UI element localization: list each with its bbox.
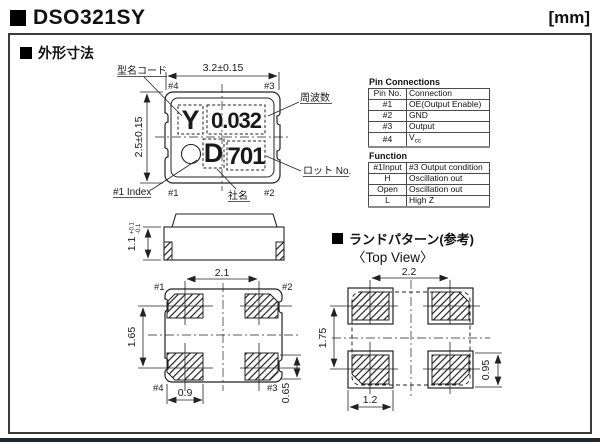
- output-condition-cell: Oscillation out: [407, 174, 490, 185]
- label-lot-no: ロット No.: [303, 166, 351, 177]
- dim-thickness-label: 1.1: [126, 237, 138, 252]
- connection-cell: Output: [407, 122, 490, 133]
- output-condition-cell: Oscillation out: [407, 185, 490, 196]
- pad-label-tr: #3: [264, 81, 275, 92]
- bottom-view-drawing: 2.1 1.65 0.9 0.65 #1 #2 #4 #3: [100, 263, 320, 433]
- section-square-icon: [332, 233, 343, 244]
- input-header-cell: #1Input: [369, 163, 407, 174]
- vcc-subscript: cc: [415, 138, 422, 145]
- pin-connections-table: Pin No. Connection #1 OE(Output Enable) …: [368, 88, 490, 148]
- pad-label-br: #3: [267, 383, 278, 394]
- input-cell: L: [369, 196, 407, 208]
- side-view-dimension-lines: [143, 227, 161, 260]
- dim-land-width-label: 1.2: [363, 394, 378, 406]
- pin-connections-block: Pin Connections Pin No. Connection #1 OE…: [368, 77, 490, 148]
- dim-thickness-tol-plus: +0.1: [130, 221, 136, 234]
- output-condition-header-cell: #3 Output condition: [407, 163, 490, 174]
- label-frequency: 周波数: [300, 91, 330, 104]
- function-table: #1Input #3 Output condition H Oscillatio…: [368, 162, 490, 208]
- top-view-drawing: 3.2±0.15 2.5±0.15 Y 0.032 D 701 #4 #3 #1…: [60, 58, 360, 208]
- connection-cell: GND: [407, 111, 490, 122]
- table-row: L High Z: [369, 196, 490, 208]
- pin-no-cell: #3: [369, 122, 407, 133]
- table-header-row: Pin No. Connection: [369, 89, 490, 100]
- dim-width-label: 3.2±0.15: [203, 62, 244, 74]
- page-header: DSO321SY: [10, 6, 146, 30]
- dim-land-pitch-x-label: 2.2: [402, 266, 417, 278]
- marking-company: D: [204, 138, 223, 168]
- table-row: #4 Vcc: [369, 133, 490, 148]
- marking-lot: 701: [227, 143, 265, 170]
- connection-cell: OE(Output Enable): [407, 100, 490, 111]
- input-cell: H: [369, 174, 407, 185]
- pin-no-header-cell: Pin No.: [369, 89, 407, 100]
- table-row: #2 GND: [369, 111, 490, 122]
- table-row: #1 OE(Output Enable): [369, 100, 490, 111]
- page-title: DSO321SY: [33, 6, 146, 30]
- pin-no-cell: #2: [369, 111, 407, 122]
- marking-code: Y: [181, 105, 199, 135]
- package-body-side: [164, 227, 284, 260]
- output-condition-cell: High Z: [407, 196, 490, 208]
- pad-label-tl: #1: [154, 282, 165, 293]
- pin1-index-mark: [182, 145, 201, 164]
- title-square-icon: [10, 10, 26, 26]
- table-row: H Oscillation out: [369, 174, 490, 185]
- connection-cell: Vcc: [407, 133, 490, 148]
- pad-label-bl: #1: [168, 188, 179, 199]
- pad-label-tr: #2: [282, 282, 293, 293]
- dim-pad-height-label: 0.65: [280, 383, 292, 404]
- dim-land-height-label: 0.95: [480, 360, 492, 381]
- table-row: #3 Output: [369, 122, 490, 133]
- label-company: 社名: [228, 189, 248, 202]
- dim-land-pitch-y-label: 1.75: [318, 328, 329, 349]
- package-lid-side: [172, 214, 277, 227]
- dim-height-label: 2.5±0.15: [133, 116, 145, 157]
- terminal-right: [276, 242, 284, 260]
- dim-pad-pitch-y-label: 1.65: [126, 327, 138, 348]
- dim-pad-pitch-x-label: 2.1: [215, 267, 230, 279]
- table-row: Open Oscillation out: [369, 185, 490, 196]
- pad-label-br: #2: [264, 188, 275, 199]
- side-view-drawing: 1.1 +0.1 -0.1: [95, 208, 335, 270]
- connection-header-cell: Connection: [407, 89, 490, 100]
- dim-thickness-tol-minus: -0.1: [136, 223, 142, 234]
- pad-label-bl: #4: [153, 383, 164, 394]
- table-header-row: #1Input #3 Output condition: [369, 163, 490, 174]
- pin-no-cell: #4: [369, 133, 407, 148]
- pin-no-cell: #1: [369, 100, 407, 111]
- pad-label-tl: #4: [168, 81, 179, 92]
- bottom-strip: [0, 438, 600, 442]
- input-cell: Open: [369, 185, 407, 196]
- dim-pad-width-label: 0.9: [178, 387, 193, 399]
- unit-label: [mm]: [548, 8, 590, 28]
- label-pin1-index: #1 Index: [113, 187, 151, 198]
- function-title: Function: [369, 151, 490, 161]
- marking-frequency: 0.032: [211, 108, 262, 133]
- function-block: Function #1Input #3 Output condition H O…: [368, 151, 490, 208]
- section-square-icon: [20, 47, 32, 59]
- label-model-code: 型名コード: [117, 64, 167, 77]
- land-pattern-drawing: 2.2 1.75 1.2 0.95: [318, 262, 590, 432]
- terminal-left: [164, 242, 172, 260]
- pin-connections-title: Pin Connections: [369, 77, 490, 87]
